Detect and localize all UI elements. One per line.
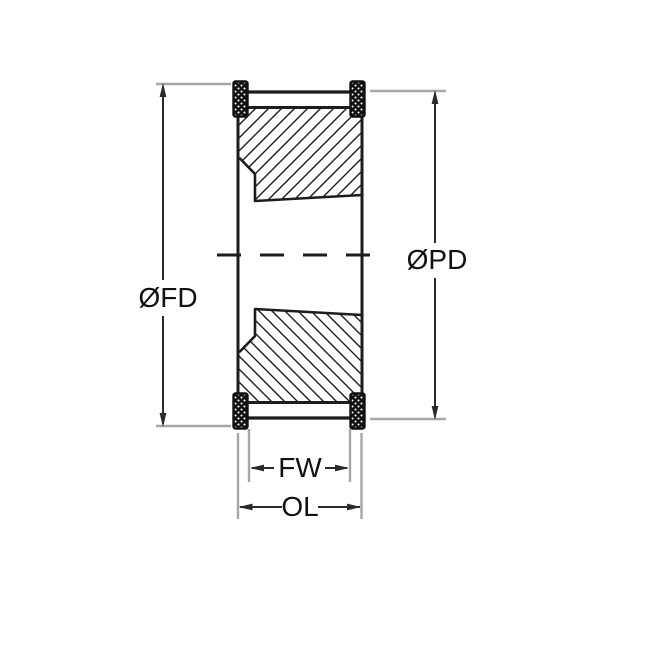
fw-label: FW: [278, 452, 322, 483]
upper-hub-hatched-section: [238, 108, 362, 202]
dimension-face-width: FW: [249, 429, 350, 483]
ol-arrow-right-icon: [347, 504, 361, 511]
flange-bottom-right: [351, 394, 365, 429]
pulley-body: [217, 82, 378, 429]
fw-arrow-left-icon: [250, 465, 264, 472]
flange-top-right: [351, 82, 365, 117]
dimension-pitch-diameter: ØPD: [370, 90, 467, 420]
rim-band-top: [246, 92, 352, 108]
rim-band-bottom: [246, 403, 352, 419]
fw-arrow-right-icon: [335, 465, 349, 472]
ol-label: OL: [281, 491, 318, 522]
flange-bottom-left: [234, 394, 248, 429]
flange-top-left: [234, 82, 248, 117]
pd-label: ØPD: [407, 244, 468, 275]
drawing-canvas: ØFD ØPD FW OL: [0, 0, 670, 670]
fd-label: ØFD: [138, 282, 197, 313]
ol-arrow-left-icon: [239, 504, 253, 511]
pulley-cross-section-drawing: ØFD ØPD FW OL: [0, 0, 670, 670]
lower-hub-hatched-section: [238, 309, 362, 403]
